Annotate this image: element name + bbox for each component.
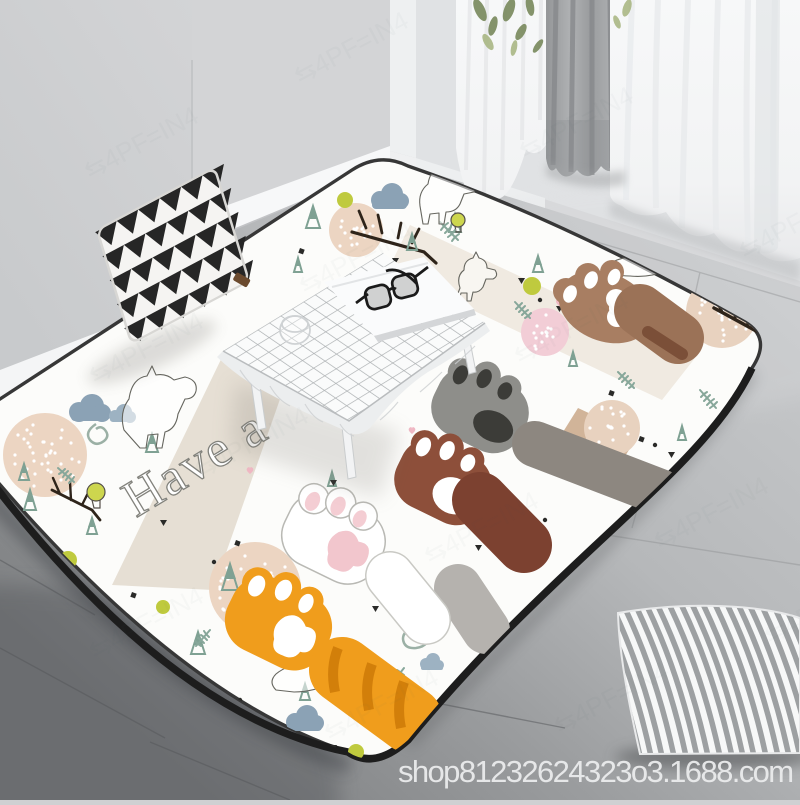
svg-text:shop81232624323o3.1688.com: shop81232624323o3.1688.com: [398, 754, 793, 789]
